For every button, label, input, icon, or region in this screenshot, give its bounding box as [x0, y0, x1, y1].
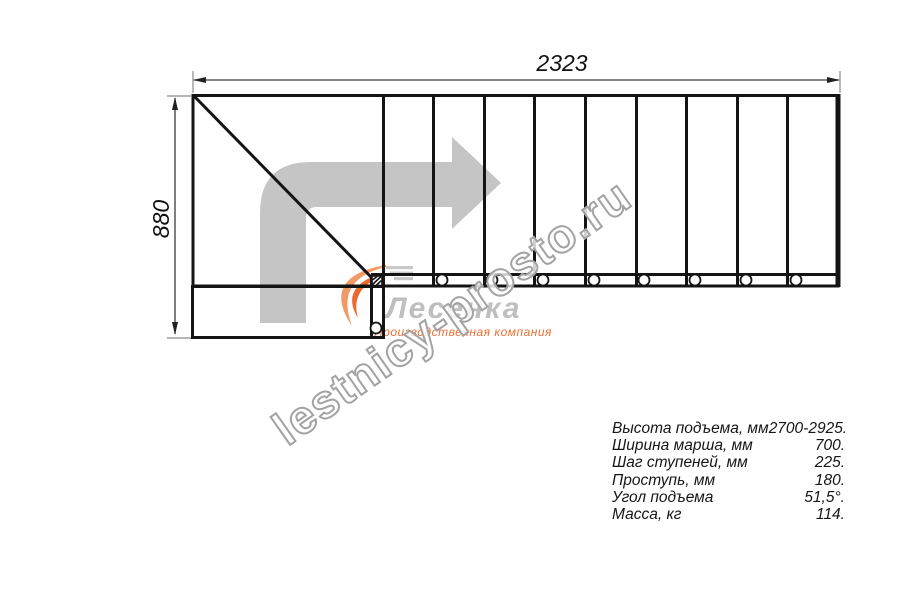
baluster-circle — [741, 275, 752, 286]
spec-value: 114. — [816, 506, 845, 523]
dim-height-label: 880 — [148, 200, 174, 239]
spec-row: Высота подъема, мм2700-2925. — [612, 420, 845, 437]
baluster-circle — [791, 275, 802, 286]
dim-arrow — [172, 97, 178, 110]
spec-value: 51,5°. — [804, 489, 845, 506]
dim-arrow — [827, 77, 840, 83]
spec-label: Проступь, мм — [612, 472, 715, 489]
baluster-circle — [639, 275, 650, 286]
spec-value: 2700-2925. — [769, 420, 847, 437]
dim-arrow — [172, 322, 178, 335]
spec-table: Высота подъема, мм2700-2925.Ширина марша… — [612, 420, 845, 523]
logo-step-bar — [386, 266, 413, 269]
dim-width-label: 2323 — [535, 50, 587, 76]
baluster-circle — [589, 275, 600, 286]
spec-row: Ширина марша, мм700. — [612, 437, 845, 454]
spec-label: Высота подъема, мм — [612, 420, 769, 437]
spec-value: 180. — [815, 472, 845, 489]
spec-value: 700. — [815, 437, 845, 454]
site-watermark: lestnicy-prosto.ru — [263, 168, 641, 455]
baluster-circle — [690, 275, 701, 286]
spec-value: 225. — [815, 454, 845, 471]
spec-row: Проступь, мм180. — [612, 472, 845, 489]
spec-row: Шаг ступеней, мм225. — [612, 454, 845, 471]
spec-row: Угол подъема51,5°. — [612, 489, 845, 506]
newel-post — [372, 276, 382, 286]
stair-drawing-page: Лесенка Производственная компания — [0, 0, 900, 600]
spec-label: Угол подъема — [612, 489, 713, 506]
dim-arrow — [193, 77, 206, 83]
logo-step-bar — [394, 277, 413, 280]
spec-label: Масса, кг — [612, 506, 681, 523]
spec-label: Шаг ступеней, мм — [612, 454, 748, 471]
spec-label: Ширина марша, мм — [612, 437, 753, 454]
spec-row: Масса, кг114. — [612, 506, 845, 523]
